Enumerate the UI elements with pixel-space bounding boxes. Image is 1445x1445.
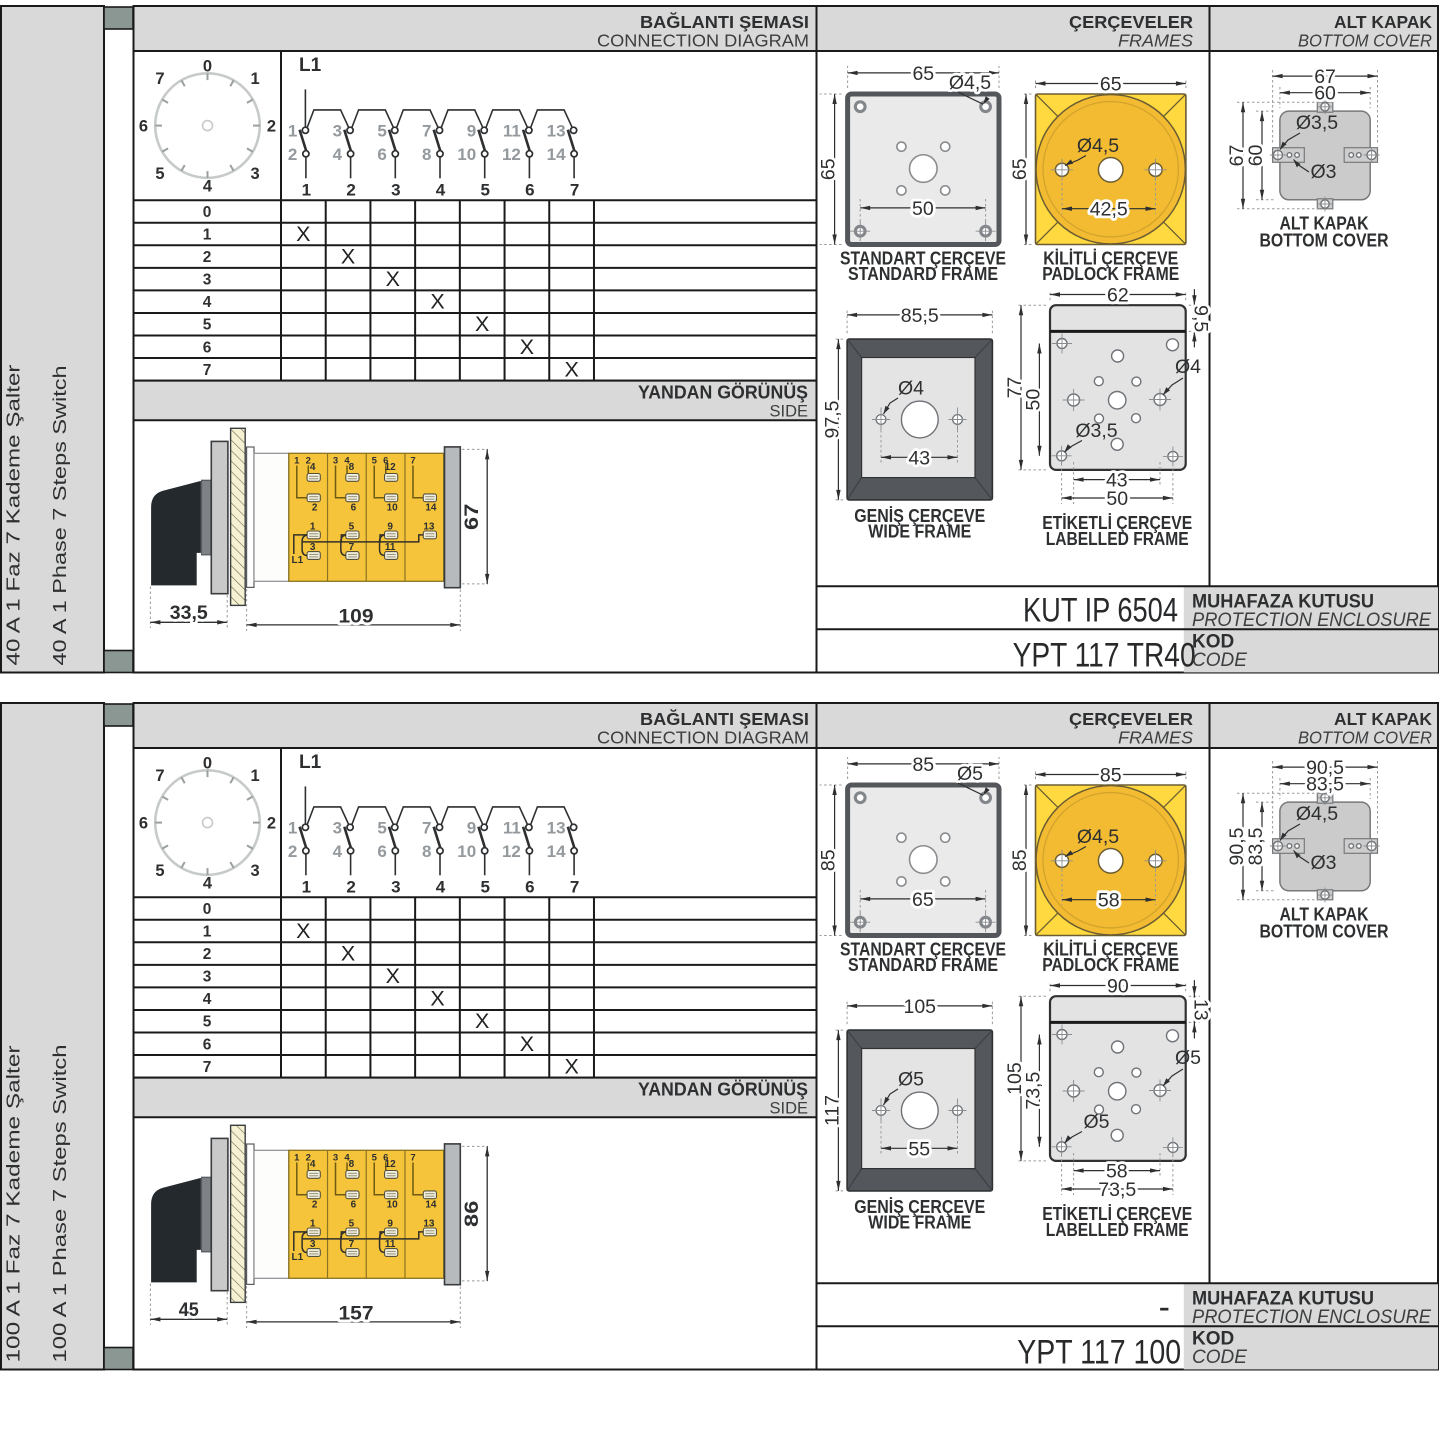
svg-text:2: 2 (346, 181, 355, 200)
svg-text:7: 7 (422, 818, 431, 837)
svg-text:PROTECTION ENCLOSURE: PROTECTION ENCLOSURE (1192, 610, 1431, 631)
svg-text:1: 1 (250, 70, 259, 88)
svg-text:7: 7 (422, 121, 431, 140)
svg-text:3: 3 (333, 121, 342, 140)
svg-text:4: 4 (333, 842, 343, 861)
svg-text:X: X (520, 1032, 534, 1056)
svg-text:Ø3: Ø3 (1310, 852, 1336, 874)
svg-text:Ø3: Ø3 (1310, 161, 1336, 183)
svg-text:L1: L1 (292, 1252, 304, 1263)
svg-text:FRAMES: FRAMES (1118, 728, 1193, 748)
svg-text:5: 5 (155, 862, 164, 880)
svg-text:85: 85 (1009, 849, 1031, 871)
svg-text:L1: L1 (299, 55, 322, 76)
svg-text:65: 65 (1100, 74, 1122, 96)
svg-text:4: 4 (203, 991, 212, 1008)
svg-text:1: 1 (302, 181, 311, 200)
svg-text:8: 8 (422, 145, 431, 164)
svg-text:5: 5 (372, 456, 378, 467)
svg-text:ALT KAPAK: ALT KAPAK (1334, 709, 1432, 729)
svg-text:2: 2 (312, 1200, 318, 1211)
svg-text:9,5: 9,5 (1189, 305, 1211, 332)
svg-text:X: X (520, 335, 534, 359)
svg-text:LABELLED FRAME: LABELLED FRAME (1046, 1220, 1189, 1240)
svg-text:7: 7 (410, 1153, 415, 1164)
svg-text:85: 85 (912, 754, 934, 776)
svg-text:62: 62 (1107, 285, 1129, 307)
svg-text:PADLOCK FRAME: PADLOCK FRAME (1042, 955, 1179, 975)
svg-text:100 A 1 Phase 7 Steps Switch: 100 A 1 Phase 7 Steps Switch (49, 1045, 70, 1363)
svg-text:0: 0 (203, 755, 212, 773)
svg-text:5: 5 (203, 1014, 212, 1031)
svg-text:109: 109 (339, 607, 374, 628)
svg-text:X: X (430, 290, 444, 314)
svg-text:1: 1 (294, 456, 300, 467)
svg-text:X: X (341, 245, 355, 269)
svg-text:13: 13 (547, 121, 566, 140)
svg-text:12: 12 (502, 145, 521, 164)
svg-text:CONNECTION DIAGRAM: CONNECTION DIAGRAM (597, 31, 809, 51)
svg-text:Ø5: Ø5 (1083, 1111, 1109, 1133)
svg-text:3: 3 (250, 165, 259, 183)
svg-text:YANDAN GÖRÜNÜŞ: YANDAN GÖRÜNÜŞ (638, 1079, 808, 1100)
svg-text:4: 4 (203, 875, 213, 893)
svg-text:X: X (564, 1054, 578, 1078)
svg-text:7: 7 (203, 1059, 212, 1076)
svg-text:3: 3 (391, 878, 400, 897)
svg-text:X: X (564, 357, 578, 381)
svg-text:ALT KAPAK: ALT KAPAK (1334, 12, 1432, 32)
svg-text:2: 2 (346, 878, 355, 897)
svg-text:7: 7 (155, 767, 164, 785)
svg-text:9: 9 (467, 818, 476, 837)
svg-text:50: 50 (1022, 389, 1044, 411)
svg-text:3: 3 (203, 969, 212, 986)
svg-text:BAĞLANTI ŞEMASI: BAĞLANTI ŞEMASI (640, 11, 809, 32)
svg-text:5: 5 (203, 317, 212, 334)
svg-text:7: 7 (155, 70, 164, 88)
svg-text:-: - (1159, 1289, 1170, 1327)
svg-text:73,5: 73,5 (1098, 1179, 1136, 1201)
svg-text:90: 90 (1107, 976, 1129, 998)
svg-text:3: 3 (333, 456, 338, 467)
svg-text:BAĞLANTI ŞEMASI: BAĞLANTI ŞEMASI (640, 708, 809, 729)
svg-text:Ø5: Ø5 (1175, 1047, 1201, 1069)
svg-text:KUT IP 6504: KUT IP 6504 (1023, 592, 1178, 630)
svg-text:1: 1 (302, 878, 311, 897)
svg-text:0: 0 (203, 204, 212, 221)
svg-text:PADLOCK FRAME: PADLOCK FRAME (1042, 264, 1179, 284)
svg-text:83,5: 83,5 (1245, 827, 1267, 865)
svg-text:6: 6 (525, 878, 534, 897)
svg-text:60: 60 (1245, 144, 1267, 166)
svg-text:ÇERÇEVELER: ÇERÇEVELER (1069, 12, 1193, 32)
svg-text:SIDE: SIDE (769, 403, 808, 421)
svg-text:6: 6 (139, 815, 148, 833)
svg-text:6: 6 (525, 181, 534, 200)
svg-text:14: 14 (547, 145, 566, 164)
svg-text:X: X (341, 942, 355, 966)
svg-text:4: 4 (310, 1159, 316, 1170)
svg-text:8: 8 (422, 842, 431, 861)
svg-text:14: 14 (425, 1200, 437, 1211)
svg-text:9: 9 (467, 121, 476, 140)
svg-text:BOTTOM COVER: BOTTOM COVER (1260, 231, 1389, 251)
svg-text:0: 0 (203, 58, 212, 76)
svg-text:SIDE: SIDE (769, 1100, 808, 1118)
svg-text:Ø4: Ø4 (1175, 356, 1201, 378)
svg-text:14: 14 (425, 503, 437, 514)
svg-text:WIDE FRAME: WIDE FRAME (868, 522, 971, 542)
svg-text:12: 12 (385, 462, 397, 473)
svg-text:4: 4 (333, 145, 343, 164)
svg-text:1: 1 (203, 227, 212, 244)
svg-text:3: 3 (203, 272, 212, 289)
svg-text:Ø4: Ø4 (898, 378, 924, 400)
svg-text:1: 1 (203, 924, 212, 941)
svg-text:13: 13 (1189, 999, 1211, 1021)
svg-text:2: 2 (267, 118, 276, 136)
svg-text:60: 60 (1314, 83, 1336, 105)
svg-text:X: X (475, 1009, 489, 1033)
svg-text:5: 5 (377, 121, 386, 140)
svg-text:58: 58 (1098, 890, 1120, 912)
svg-text:11: 11 (503, 121, 521, 140)
svg-text:73,5: 73,5 (1022, 1072, 1044, 1110)
svg-text:86: 86 (462, 1201, 483, 1227)
svg-text:6: 6 (139, 118, 148, 136)
svg-text:CODE: CODE (1192, 1347, 1247, 1368)
svg-text:Ø5: Ø5 (898, 1069, 924, 1091)
svg-text:5: 5 (372, 1153, 378, 1164)
svg-text:67: 67 (462, 504, 483, 530)
svg-text:6: 6 (203, 339, 212, 356)
svg-text:14: 14 (547, 842, 566, 861)
svg-text:65: 65 (912, 889, 934, 911)
svg-text:157: 157 (339, 1304, 374, 1325)
svg-text:BOTTOM COVER: BOTTOM COVER (1298, 728, 1432, 748)
svg-text:3: 3 (391, 181, 400, 200)
svg-text:10: 10 (387, 1200, 399, 1211)
svg-text:PROTECTION ENCLOSURE: PROTECTION ENCLOSURE (1192, 1307, 1431, 1328)
svg-text:8: 8 (349, 1159, 355, 1170)
svg-text:BOTTOM COVER: BOTTOM COVER (1298, 31, 1432, 51)
svg-text:STANDARD FRAME: STANDARD FRAME (848, 264, 998, 284)
svg-text:5: 5 (480, 181, 489, 200)
svg-text:105: 105 (903, 996, 936, 1018)
svg-text:0: 0 (203, 901, 212, 918)
svg-text:5: 5 (480, 878, 489, 897)
svg-text:YANDAN GÖRÜNÜŞ: YANDAN GÖRÜNÜŞ (638, 382, 808, 403)
svg-text:2: 2 (312, 503, 318, 514)
svg-text:3: 3 (333, 818, 342, 837)
svg-text:4: 4 (436, 181, 446, 200)
svg-text:43: 43 (908, 447, 930, 469)
svg-text:X: X (386, 267, 400, 291)
svg-text:8: 8 (349, 462, 355, 473)
svg-text:42,5: 42,5 (1090, 199, 1128, 221)
svg-text:STANDARD FRAME: STANDARD FRAME (848, 955, 998, 975)
svg-text:1: 1 (294, 1153, 300, 1164)
svg-text:33,5: 33,5 (170, 603, 208, 624)
svg-text:40 A 1 Phase 7 Steps Switch: 40 A 1 Phase 7 Steps Switch (49, 366, 70, 666)
svg-text:Ø3,5: Ø3,5 (1075, 420, 1117, 442)
svg-text:3: 3 (333, 1153, 338, 1164)
svg-text:CODE: CODE (1192, 650, 1247, 671)
svg-text:4: 4 (436, 878, 446, 897)
svg-text:Ø4,5: Ø4,5 (1077, 135, 1119, 157)
svg-text:X: X (430, 987, 444, 1011)
svg-text:6: 6 (377, 842, 386, 861)
svg-text:6: 6 (203, 1036, 212, 1053)
svg-text:L1: L1 (292, 555, 304, 566)
svg-text:85,5: 85,5 (901, 305, 939, 327)
svg-text:13: 13 (547, 818, 566, 837)
svg-text:50: 50 (1106, 488, 1128, 510)
svg-text:1: 1 (288, 121, 297, 140)
svg-text:X: X (296, 919, 310, 943)
svg-text:FRAMES: FRAMES (1118, 31, 1193, 51)
svg-text:WIDE FRAME: WIDE FRAME (868, 1213, 971, 1233)
svg-text:65: 65 (818, 158, 840, 180)
svg-text:X: X (386, 964, 400, 988)
svg-text:12: 12 (502, 842, 521, 861)
svg-text:2: 2 (288, 842, 297, 861)
svg-text:10: 10 (457, 842, 476, 861)
svg-text:6: 6 (351, 1200, 357, 1211)
svg-text:Ø4,5: Ø4,5 (949, 72, 991, 94)
svg-text:2: 2 (288, 145, 297, 164)
svg-text:97,5: 97,5 (821, 400, 843, 438)
svg-text:1: 1 (250, 767, 259, 785)
svg-text:11: 11 (503, 818, 521, 837)
svg-text:50: 50 (912, 198, 934, 220)
svg-text:Ø3,5: Ø3,5 (1296, 112, 1338, 134)
svg-text:7: 7 (570, 181, 579, 200)
svg-text:12: 12 (385, 1159, 397, 1170)
svg-text:2: 2 (203, 249, 212, 266)
svg-text:CONNECTION DIAGRAM: CONNECTION DIAGRAM (597, 728, 809, 748)
svg-text:4: 4 (203, 294, 212, 311)
svg-text:1: 1 (288, 818, 297, 837)
svg-text:ÇERÇEVELER: ÇERÇEVELER (1069, 709, 1193, 729)
svg-text:55: 55 (908, 1138, 930, 1160)
svg-text:85: 85 (1100, 765, 1122, 787)
svg-text:7: 7 (570, 878, 579, 897)
svg-text:7: 7 (203, 362, 212, 379)
svg-text:83,5: 83,5 (1306, 774, 1344, 796)
svg-text:6: 6 (377, 145, 386, 164)
svg-text:65: 65 (1009, 158, 1031, 180)
svg-text:X: X (296, 222, 310, 246)
svg-text:Ø4,5: Ø4,5 (1077, 826, 1119, 848)
svg-text:3: 3 (250, 862, 259, 880)
svg-text:40 A 1 Faz 7 Kademe Şalter: 40 A 1 Faz 7 Kademe Şalter (3, 365, 24, 666)
svg-text:5: 5 (377, 818, 386, 837)
svg-text:100 A 1 Faz 7 Kademe Şalter: 100 A 1 Faz 7 Kademe Şalter (3, 1046, 24, 1363)
svg-text:5: 5 (155, 165, 164, 183)
svg-text:BOTTOM COVER: BOTTOM COVER (1260, 922, 1389, 942)
svg-text:YPT 117 100: YPT 117 100 (1017, 1333, 1181, 1371)
svg-text:10: 10 (387, 503, 399, 514)
svg-text:X: X (475, 312, 489, 336)
svg-text:Ø4,5: Ø4,5 (1296, 803, 1338, 825)
svg-text:2: 2 (203, 946, 212, 963)
svg-text:YPT 117 TR40: YPT 117 TR40 (1013, 636, 1196, 674)
svg-text:L1: L1 (299, 752, 322, 773)
svg-text:65: 65 (912, 63, 934, 85)
svg-text:7: 7 (410, 456, 415, 467)
svg-text:2: 2 (267, 815, 276, 833)
svg-text:117: 117 (821, 1095, 843, 1126)
svg-text:10: 10 (457, 145, 476, 164)
svg-text:4: 4 (203, 178, 213, 196)
svg-text:6: 6 (351, 503, 357, 514)
svg-text:85: 85 (818, 849, 840, 871)
svg-text:LABELLED FRAME: LABELLED FRAME (1046, 529, 1189, 549)
svg-text:45: 45 (179, 1300, 199, 1321)
svg-text:4: 4 (310, 462, 316, 473)
svg-text:Ø5: Ø5 (957, 763, 983, 785)
